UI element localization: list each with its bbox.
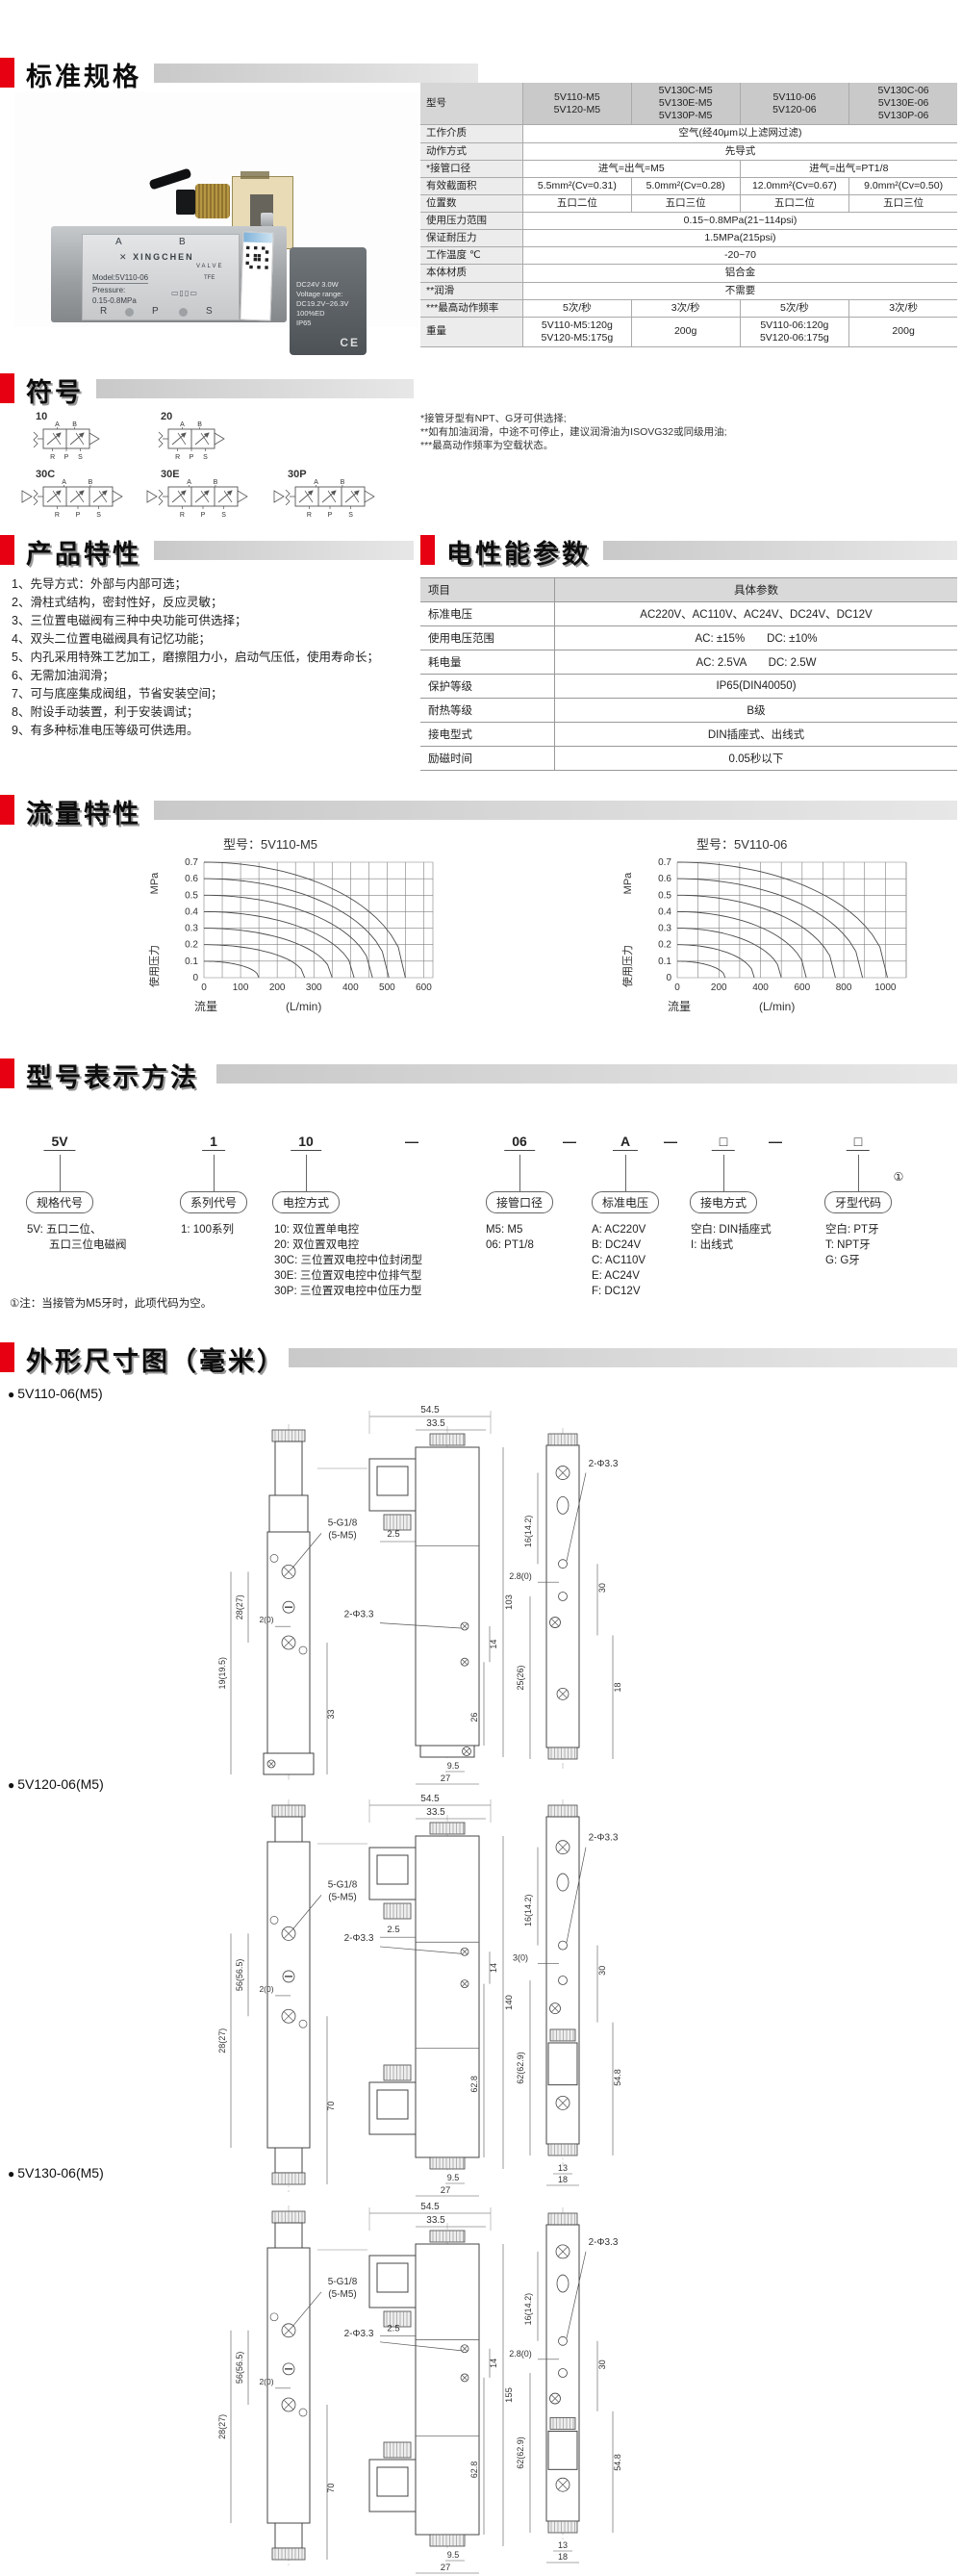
connector-line [858, 1155, 859, 1191]
sticker-stripe [243, 233, 272, 243]
header-bar [603, 541, 957, 560]
section-title-features: 产品特性 [26, 533, 141, 571]
model-options-牙型代码: 空白: PT牙 T: NPT牙 G: G牙 [825, 1222, 879, 1268]
port-letter: A [314, 479, 318, 486]
y-tick: 0.2 [658, 940, 671, 951]
row-label: 励磁时间 [420, 747, 555, 771]
value-cell: AC220V、AC110V、AC24V、DC24V、DC12V [555, 602, 958, 626]
row-label: 保证耐压力 [420, 230, 522, 247]
model-cell: 5V110-065V120-06 [740, 83, 849, 125]
port-b-label: B [179, 237, 186, 247]
value-cell: 五口二位 [522, 194, 631, 212]
port-letter: B [341, 479, 345, 486]
y-axis-label: 使用压力 [621, 945, 634, 987]
code-separator: — [769, 1134, 782, 1149]
red-marker [0, 1342, 14, 1372]
model-options-接电方式: 空白: DIN插座式 I: 出线式 [691, 1222, 772, 1253]
tfe-text: TFE [204, 275, 215, 281]
front-view: 5-G1/8(5-M5)28(27)19(19.5)2(0)33 [217, 1424, 367, 1782]
dim-v4: 70 [326, 2484, 336, 2493]
table-row: 位置数五口二位五口三位五口二位五口三位 [420, 194, 957, 212]
header-bar [154, 801, 957, 820]
symbol-code: 30P [288, 469, 307, 480]
dim-r2: 54.8 [613, 2454, 622, 2471]
dim-b1: 9.5 [447, 1761, 460, 1771]
value-cell: 五口三位 [631, 194, 740, 212]
y-tick: 0 [666, 973, 671, 983]
red-marker [0, 58, 14, 88]
flow-curve-0.5MPa [204, 895, 372, 978]
symbol-code: 30C [36, 469, 55, 480]
model-text: Model:5V110-06 [92, 273, 148, 284]
model-cell: 5V130C-M55V130E-M55V130P-M5 [631, 83, 740, 125]
dim-thread: 5-G1/8 [328, 2277, 358, 2287]
dim-drawing-5v120: 5-G1/8(5-M5)56(56.5)28(27)2(0)7054.533.5… [0, 1792, 962, 2198]
port-letter: R [175, 454, 180, 461]
red-marker [0, 1058, 14, 1088]
model-code-1: 5V [43, 1134, 75, 1151]
table-row: 动作方式先导式 [420, 142, 957, 160]
red-marker [0, 535, 14, 565]
pressure-label: Pressure: [92, 286, 125, 294]
spec-footnotes: *接管牙型有NPT、G牙可供选择; **如有加油润滑，中途不可停止，建议润滑油为… [420, 412, 957, 452]
dim-h2: 14 [489, 1640, 498, 1649]
model-code-7: □ [847, 1134, 870, 1151]
value-cell: 5次/秒 [740, 299, 849, 317]
dim-drawing-5v130: 5-G1/8(5-M5)56(56.5)28(27)2(0)7054.533.5… [0, 2202, 962, 2575]
side-view: 54.533.52-Φ3.32.51462.81559.527 [344, 2202, 515, 2573]
y-axis-unit: MPa [622, 872, 634, 895]
connector-line [214, 1155, 215, 1191]
model-cell: 5V130C-065V130E-065V130P-06 [849, 83, 957, 125]
dim-holes: 2-Φ3.3 [344, 2329, 374, 2339]
model-options-标准电压: A: AC220V B: DC24V C: AC110V E: AC24V F:… [592, 1222, 646, 1299]
feature-item: 1、先导方式：外部与内部可选； [12, 575, 416, 594]
feature-item: 5、内孔采用特殊工艺加工，磨擦阻力小，启动气压低，使用寿命长； [12, 649, 416, 667]
table-row: 有效截面积5.5mm²(Cv=0.31)5.0mm²(Cv=0.28)12.0m… [420, 177, 957, 194]
value-cell: 先导式 [522, 142, 957, 160]
value-cell: 1.5MPa(215psi) [522, 230, 957, 247]
row-label: 工作介质 [420, 125, 522, 142]
flow-curve-0.1MPa [677, 961, 725, 978]
x-tick: 100 [233, 982, 249, 993]
dim-w2: 33.5 [426, 1418, 445, 1429]
red-marker [0, 795, 14, 825]
table-row: 耗电量AC: 2.5VA DC: 2.5W [420, 650, 957, 675]
valve-symbol-30C: 30CABRPS [22, 469, 122, 519]
dim-h2: 14 [489, 1963, 498, 1973]
dim-h3: 26 [469, 1713, 479, 1722]
y-tick: 0.7 [658, 857, 671, 868]
port-hole [179, 308, 188, 317]
row-label: 工作温度 ℃ [420, 247, 522, 265]
value-cell: 12.0mm²(Cv=0.67) [740, 177, 849, 194]
brass-gland [195, 184, 230, 218]
y-tick: 0.4 [185, 906, 198, 917]
port-letter: B [72, 421, 77, 428]
table-row: 保证耐压力1.5MPa(215psi) [420, 230, 957, 247]
header-bar [154, 64, 478, 83]
dim-drawing-5v110: 5-G1/8(5-M5)28(27)19(19.5)2(0)3354.533.5… [0, 1401, 962, 1786]
dim-w2: 33.5 [426, 1807, 445, 1818]
dim-t2: 3(0) [513, 1953, 528, 1963]
connector-line [625, 1155, 626, 1191]
section-title-specs: 标准规格 [26, 56, 141, 93]
dim-holes: 2-Φ3.3 [589, 1459, 619, 1469]
model-pill-系列代号: 系列代号 [180, 1191, 247, 1213]
row-label: 使用电压范围 [420, 626, 555, 650]
end-view: 16(14.2)2-Φ3.33(0)3062(62.9)54.81318 [513, 1799, 622, 2185]
y-tick: 0.6 [185, 874, 198, 884]
feature-item: 4、双头二位置电磁阀具有记忆功能； [12, 630, 416, 649]
x-tick: 400 [752, 982, 769, 993]
valve-symbol-20: 20ABRPS [159, 411, 224, 461]
qr-sticker [240, 231, 273, 320]
dim-b2: 18 [558, 2175, 568, 2184]
row-label: 标准电压 [420, 602, 555, 626]
value-cell: 五口二位 [740, 194, 849, 212]
model-cell: 5V110-M55V120-M5 [522, 83, 631, 125]
flow-curve-0.1MPa [204, 961, 259, 978]
row-label: 接电型式 [420, 723, 555, 747]
flow-curve-0.3MPa [204, 929, 332, 978]
electrical-table-wrap: 项目具体参数标准电压AC220V、AC110V、AC24V、DC24V、DC12… [420, 577, 957, 771]
valve-symbol-30P: 30PABRPS [274, 469, 374, 519]
dim-t2: 2.8(0) [509, 2349, 532, 2359]
y-tick: 0 [192, 973, 198, 983]
dim-v3: 2(0) [259, 1984, 273, 1994]
port-a-label: A [115, 237, 122, 247]
section-title-dimensions: 外形尺寸图（毫米） [26, 1340, 286, 1378]
feature-item: 7、可与底座集成阀组，节省安装空间； [12, 685, 416, 703]
dim-v2: 28(27) [235, 1594, 244, 1620]
dim-t2: 2.8(0) [509, 1571, 532, 1581]
dim-v2: 56(56.5) [235, 2352, 244, 2385]
dim-b2: 27 [441, 2563, 451, 2573]
port-letter: R [50, 454, 55, 461]
row-label: 本体材质 [420, 265, 522, 282]
value-cell: 0.05秒以下 [555, 747, 958, 771]
qr-code [245, 246, 269, 270]
dim-drawing-label-3: 5V130-06(M5) [8, 2165, 104, 2181]
value-cell: 5次/秒 [522, 299, 631, 317]
port-letter: R [55, 512, 60, 519]
dim-thread2: (5-M5) [328, 2289, 356, 2300]
pressure-value: 0.15-0.8MPa [92, 296, 137, 305]
y-tick: 0.5 [185, 890, 198, 901]
value-cell: 五口三位 [849, 194, 957, 212]
chart-title: 型号：5V110-06 [696, 837, 787, 852]
dim-t1: 16(14.2) [523, 2293, 533, 2326]
x-tick: 800 [836, 982, 852, 993]
dim-thread: 5-G1/8 [328, 1518, 358, 1528]
symbol-code: 30E [161, 469, 180, 480]
row-label: 动作方式 [420, 142, 522, 160]
y-axis-label: 使用压力 [148, 945, 161, 987]
port-r-label: R [100, 306, 107, 317]
value-cell: 200g [631, 317, 740, 346]
table-row: 工作介质空气(经40μm以上滤网过滤) [420, 125, 957, 142]
dim-h3: 62.8 [469, 2076, 479, 2093]
feature-item: 9、有多种标准电压等级可供选用。 [12, 722, 416, 740]
dim-thread: 5-G1/8 [328, 1879, 358, 1890]
features-list: 1、先导方式：外部与内部可选；2、滑柱式结构，密封性好，反应灵敏；3、三位置电磁… [12, 575, 416, 740]
y-tick: 0.3 [658, 924, 671, 934]
port-letter: S [96, 512, 101, 519]
value-cell: DIN插座式、出线式 [555, 723, 958, 747]
dim-v2: 56(56.5) [235, 1959, 244, 1992]
y-axis-unit: MPa [149, 872, 161, 895]
col-header: 型号 [420, 83, 522, 125]
flow-chart-5v110-06: 型号：5V110-0600.10.20.30.40.50.60.70200400… [616, 833, 948, 1043]
red-marker [420, 535, 435, 565]
dim-r1: 30 [597, 1583, 607, 1593]
x-axis-unit: (L/min) [759, 1000, 795, 1013]
mini-schematic: ▭▯▯▭ [171, 289, 198, 297]
ce-mark: CE [340, 336, 360, 349]
header-bar [216, 1064, 957, 1084]
dim-w3: 2.5 [387, 1529, 399, 1540]
model-code-3: 10 [291, 1134, 321, 1151]
value-cell: -20~70 [522, 247, 957, 265]
model-pill-电控方式: 电控方式 [272, 1191, 340, 1213]
dim-h2: 14 [489, 2359, 498, 2368]
port-letter: A [62, 479, 66, 486]
port-letter: A [180, 421, 185, 428]
dim-t1: 16(14.2) [523, 1894, 533, 1926]
code-separator: — [664, 1134, 677, 1149]
dim-thread2: (5-M5) [328, 1892, 356, 1902]
valve-symbol-30E: 30EABRPS [147, 469, 247, 519]
table-row: 耐热等级B级 [420, 699, 957, 723]
connector-line [519, 1155, 520, 1191]
value-cell: 铝合金 [522, 265, 957, 282]
row-label: ***最高动作频率 [420, 299, 522, 317]
connector-line [723, 1155, 724, 1191]
value-cell: 进气=出气=PT1/8 [740, 160, 957, 177]
y-tick: 0.3 [185, 924, 198, 934]
x-tick: 600 [416, 982, 432, 993]
port-letter: S [203, 454, 208, 461]
dim-w3: 2.5 [387, 1925, 399, 1935]
value-cell: B级 [555, 699, 958, 723]
symbol-code: 20 [161, 411, 172, 422]
row-label: *接管口径 [420, 160, 522, 177]
header-bar [289, 1348, 957, 1367]
red-marker [0, 373, 14, 403]
dim-w2: 33.5 [426, 2215, 445, 2226]
table-row: 使用电压范围AC: ±15% DC: ±10% [420, 626, 957, 650]
dim-v1: 19(19.5) [217, 1657, 227, 1690]
flow-curve-0.7MPa [677, 862, 888, 978]
port-letter: A [55, 421, 60, 428]
model-pill-牙型代码: 牙型代码 [824, 1191, 892, 1213]
dim-l1: 25(26) [516, 1665, 525, 1690]
dim-holes: 2-Φ3.3 [344, 1610, 374, 1620]
side-view: 54.533.52-Φ3.32.514261039.527 [344, 1405, 515, 1784]
value-cell: 3次/秒 [849, 299, 957, 317]
table-row: 工作温度 ℃-20~70 [420, 247, 957, 265]
x-tick: 200 [711, 982, 727, 993]
row-label: 位置数 [420, 194, 522, 212]
dim-b2: 27 [441, 1773, 451, 1784]
model-pill-接电方式: 接电方式 [690, 1191, 757, 1213]
port-p-label: P [152, 306, 159, 317]
table-row: 使用压力范围0.15~0.8MPa(21~114psi) [420, 213, 957, 230]
x-tick: 500 [379, 982, 395, 993]
valve-face-plate: A B ✕ XINGCHEN VALVE Model:5V110-06 TFE … [82, 234, 240, 320]
dim-h3: 62.8 [469, 2461, 479, 2479]
dim-holes: 2-Φ3.3 [344, 1933, 374, 1944]
table-row: 型号5V110-M55V120-M55V130C-M55V130E-M55V13… [420, 83, 957, 125]
port-letter: P [328, 512, 333, 519]
dim-v3: 2(0) [259, 2377, 273, 2386]
row-label: 使用压力范围 [420, 213, 522, 230]
port-letter: P [64, 454, 69, 461]
y-tick: 0.5 [658, 890, 671, 901]
port-hole [125, 308, 134, 317]
dim-b1: 9.5 [447, 2173, 460, 2182]
product-photo: A B ✕ XINGCHEN VALVE Model:5V110-06 TFE … [14, 91, 418, 327]
electrical-table: 项目具体参数标准电压AC220V、AC110V、AC24V、DC24V、DC12… [420, 577, 957, 771]
table-row: **润滑不需要 [420, 282, 957, 299]
y-tick: 0.6 [658, 874, 671, 884]
section-title-symbols: 符号 [26, 371, 84, 409]
dim-holes: 2-Φ3.3 [589, 1832, 619, 1843]
dim-l1: 62(62.9) [516, 2052, 525, 2084]
table-row: 接电型式DIN插座式、出线式 [420, 723, 957, 747]
feature-item: 3、三位置电磁阀有三种中央功能可供选择； [12, 612, 416, 630]
table-row: 保护等级IP65(DIN40050) [420, 675, 957, 699]
dim-b2: 27 [441, 2185, 451, 2196]
x-axis-unit: (L/min) [286, 1000, 321, 1013]
side-view: 54.533.52-Φ3.32.51462.81409.527 [344, 1794, 515, 2196]
table-row: 励磁时间0.05秒以下 [420, 747, 957, 771]
table-row: *接管口径进气=出气=M5进气=出气=PT1/8 [420, 160, 957, 177]
port-s-label: S [206, 306, 213, 317]
value-cell: 空气(经40μm以上滤网过滤) [522, 125, 957, 142]
x-tick: 0 [201, 982, 207, 993]
front-view: 5-G1/8(5-M5)56(56.5)28(27)2(0)70 [217, 1799, 367, 2192]
x-tick: 0 [674, 982, 680, 993]
spec-table: 型号5V110-M55V120-M55V130C-M55V130E-M55V13… [420, 83, 957, 347]
section-title-flow: 流量特性 [26, 793, 141, 830]
port-letter: B [197, 421, 202, 428]
row-label: 保护等级 [420, 675, 555, 699]
value-cell: 5.0mm²(Cv=0.28) [631, 177, 740, 194]
table-row: 项目具体参数 [420, 578, 957, 602]
dim-w1: 54.5 [420, 1794, 440, 1804]
x-axis-label: 流量 [668, 1000, 691, 1013]
coil-text: DC24V 3.0W Voltage range: DC19.2V~26.3V … [296, 280, 348, 328]
model-pill-标准电压: 标准电压 [592, 1191, 659, 1213]
note-mark: ① [894, 1170, 904, 1184]
model-options-规格代号: 5V: 五口二位、 五口三位电磁阀 [27, 1222, 127, 1253]
model-options-接管口径: M5: M5 06: PT1/8 [486, 1222, 534, 1253]
flow-curve-0.7MPa [204, 862, 405, 978]
model-options-系列代号: 1: 100系列 [181, 1222, 234, 1237]
port-letter: P [201, 512, 206, 519]
row-label: 耐热等级 [420, 699, 555, 723]
port-letter: P [76, 512, 81, 519]
value-cell: IP65(DIN40050) [555, 675, 958, 699]
flow-curve-0.5MPa [677, 895, 835, 978]
value-cell: AC: 2.5VA DC: 2.5W [555, 650, 958, 675]
end-view: 16(14.2)2-Φ3.32.8(0)3062(62.9)54.81318 [509, 2207, 622, 2563]
section-title-model: 型号表示方法 [26, 1057, 199, 1094]
model-code-6: □ [712, 1134, 735, 1151]
x-tick: 400 [342, 982, 359, 993]
model-pill-规格代号: 规格代号 [26, 1191, 93, 1213]
section-title-electrical: 电性能参数 [446, 533, 591, 571]
table-row: 本体材质铝合金 [420, 265, 957, 282]
row-label: 重量 [420, 317, 522, 346]
dim-w1: 54.5 [420, 1405, 440, 1416]
front-view: 5-G1/8(5-M5)56(56.5)28(27)2(0)70 [217, 2206, 367, 2567]
dim-thread2: (5-M5) [328, 1530, 356, 1541]
x-tick: 300 [306, 982, 322, 993]
table-row: 标准电压AC220V、AC110V、AC24V、DC24V、DC12V [420, 602, 957, 626]
dim-h1: 140 [504, 1995, 515, 2010]
cable [149, 167, 192, 190]
flow-chart-5v110-m5: 型号：5V110-M500.10.20.30.40.50.60.70100200… [142, 833, 469, 1043]
dim-v1: 28(27) [217, 2028, 227, 2053]
feature-item: 8、附设手动装置，利于安装调试； [12, 703, 416, 722]
value-cell: 0.15~0.8MPa(21~114psi) [522, 213, 957, 230]
feature-item: 2、滑柱式结构，密封性好，反应灵敏； [12, 594, 416, 612]
dim-r2: 54.8 [613, 2069, 622, 2086]
connector-line [60, 1155, 61, 1191]
port-letter: A [187, 479, 191, 486]
dim-h1: 155 [504, 2387, 515, 2403]
dim-r1: 30 [597, 1966, 607, 1976]
dim-v4: 33 [326, 1709, 336, 1719]
valve-symbol-10: 10ABRPS [34, 411, 99, 461]
model-code-2: 1 [202, 1134, 225, 1151]
value-cell: 不需要 [522, 282, 957, 299]
dim-v3: 2(0) [259, 1615, 273, 1624]
x-tick: 600 [794, 982, 810, 993]
din-top [240, 171, 269, 179]
col-header: 具体参数 [555, 578, 958, 602]
dim-r2: 18 [613, 1682, 622, 1692]
dim-b1: 13 [558, 2540, 568, 2550]
y-tick: 0.1 [658, 956, 671, 967]
dim-holes: 2-Φ3.3 [589, 2237, 619, 2248]
value-cell: 5V110-M5:120g5V120-M5:175g [522, 317, 631, 346]
dim-r1: 30 [597, 2359, 607, 2369]
dim-w3: 2.5 [387, 2324, 399, 2334]
port-letter: R [307, 512, 312, 519]
spec-table-wrap: 型号5V110-M55V120-M55V130C-M55V130E-M55V13… [420, 83, 957, 347]
chart-title: 型号：5V110-M5 [223, 837, 317, 852]
model-note: ①注：当接管为M5牙时，此项代码为空。 [10, 1295, 212, 1311]
port-letter: R [180, 512, 185, 519]
coil-block: DC24V 3.0W Voltage range: DC19.2V~26.3V … [290, 247, 367, 355]
x-axis-label: 流量 [194, 1000, 217, 1013]
row-label: **润滑 [420, 282, 522, 299]
dim-w1: 54.5 [420, 2202, 440, 2212]
datasheet-page: 标准规格 符号 产品特性 电性能参数 流量特性 型号表示方法 外形尺寸图（毫米） [0, 0, 962, 2576]
value-cell: 200g [849, 317, 957, 346]
value-cell: 5.5mm²(Cv=0.31) [522, 177, 631, 194]
feature-item: 6、无需加油润滑； [12, 667, 416, 685]
code-separator: — [563, 1134, 576, 1149]
row-label: 有效截面积 [420, 177, 522, 194]
header-bar [154, 541, 414, 560]
dim-l1: 62(62.9) [516, 2436, 525, 2469]
port-letter: B [89, 479, 93, 486]
